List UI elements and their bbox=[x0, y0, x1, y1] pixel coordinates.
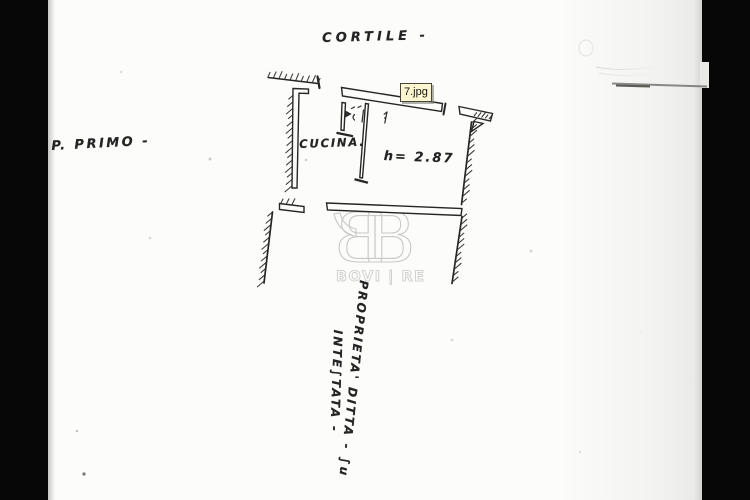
kitchen-left-wall-foot bbox=[280, 204, 305, 213]
scan-edge-notch bbox=[700, 62, 709, 88]
right-wall-cap-tail bbox=[472, 122, 484, 132]
right-wall-line bbox=[462, 122, 472, 205]
scanned-floorplan-page: B B BOVI | RE bbox=[0, 0, 750, 500]
door-jamb-stub bbox=[341, 103, 346, 131]
label-courtyard: CORTILE - bbox=[322, 28, 429, 46]
top-wall-end-cap bbox=[444, 104, 446, 115]
interior-wall-foot bbox=[356, 180, 368, 183]
scan-artifact-squiggles bbox=[579, 40, 701, 75]
scan-edge-left-bar bbox=[0, 0, 48, 500]
scan-edge-left-fade bbox=[48, 0, 55, 500]
lower-right-boundary-line bbox=[452, 217, 462, 284]
courtyard-boundary-line bbox=[268, 78, 318, 84]
filename-tooltip: 7.jpg bbox=[400, 83, 432, 102]
label-ceiling-height: h= 2.87 bbox=[383, 149, 454, 166]
scan-edge-right-bar bbox=[702, 0, 750, 500]
floorplan-drawing: B B BOVI | RE bbox=[0, 0, 750, 500]
watermark-name: BOVI | RE bbox=[336, 269, 426, 285]
lower-left-boundary-line bbox=[264, 212, 273, 283]
label-kitchen-room: CUCINA. bbox=[299, 135, 366, 151]
